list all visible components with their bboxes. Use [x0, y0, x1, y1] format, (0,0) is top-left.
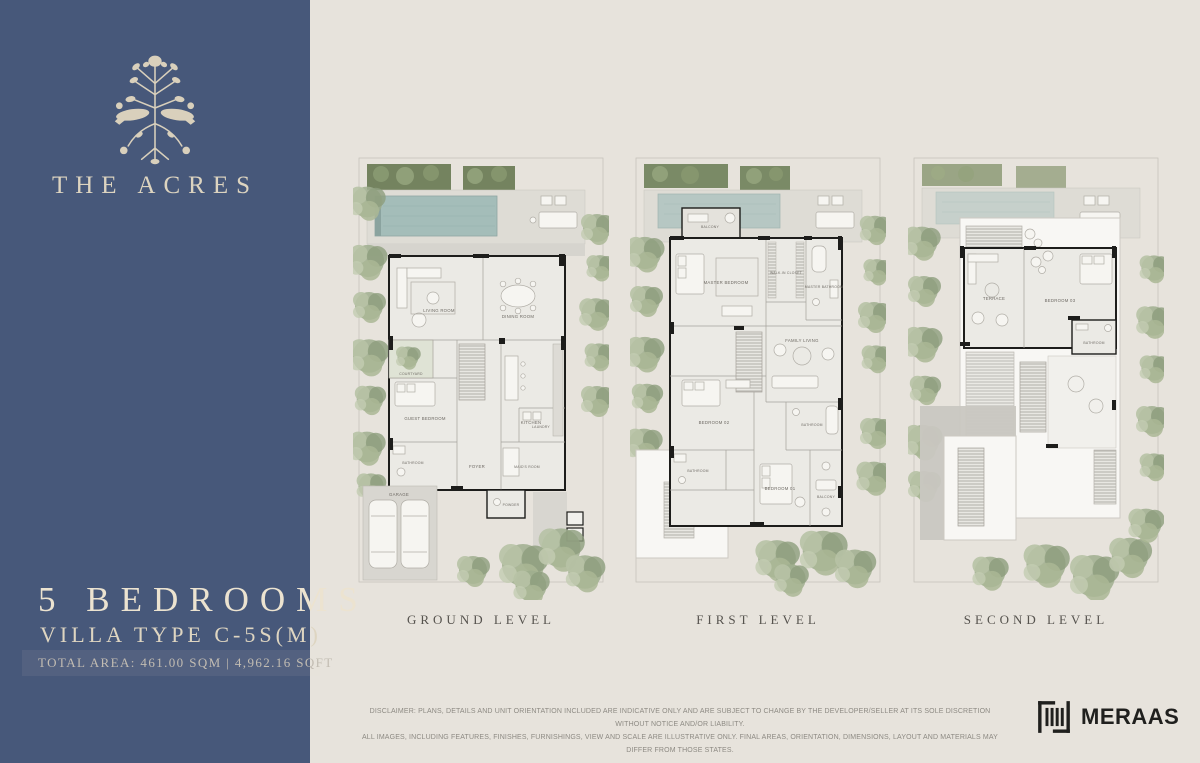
botanical-emblem-icon [98, 50, 212, 166]
brand-name: THE ACRES [0, 172, 310, 200]
disclaimer-line-2: ALL IMAGES, INCLUDING FEATURES, FINISHES… [352, 731, 1008, 757]
room-label-bathroom: BATHROOM [1083, 341, 1104, 345]
room-label-balcony-bottom: BALCONY [817, 495, 835, 499]
room-label-foyer: FOYER [469, 464, 485, 469]
room-label-garage: GARAGE [389, 492, 409, 497]
first-level-plan: BALCONY MASTER BEDROOM WALK-IN CLOSET MA… [630, 150, 886, 600]
developer-logo: MERAAS [1036, 700, 1179, 734]
plan-caption-second-level: SECOND LEVEL [908, 612, 1164, 628]
room-label-master-bedroom: MASTER BEDROOM [704, 280, 749, 285]
room-label-dining-room: DINING ROOM [502, 314, 535, 319]
unit-subheadline: VILLA TYPE C-5S(M) [40, 622, 322, 648]
room-label-master-bathroom: MASTER BATHROOM [805, 285, 843, 289]
meraas-bars-icon [1036, 700, 1072, 734]
room-label-courtyard: COURTYARD [399, 372, 423, 376]
room-label-terrace: TERRACE [983, 296, 1005, 301]
room-label-guest-bedroom: GUEST BEDROOM [404, 416, 446, 421]
brochure-page: THE ACRES 5 BEDROOMS VILLA TYPE C-5S(M) … [0, 0, 1200, 763]
developer-logo-text: MERAAS [1081, 704, 1179, 730]
room-label-walk-in-closet: WALK-IN CLOSET [770, 271, 802, 275]
plan-caption-ground-level: GROUND LEVEL [353, 612, 609, 628]
room-label-laundry: LAUNDRY [532, 425, 550, 429]
second-level-plan: TERRACE BEDROOM 03 BATHROOM [908, 150, 1164, 600]
disclaimer-line-1: DISCLAIMER: PLANS, DETAILS AND UNIT ORIE… [352, 705, 1008, 731]
room-label-maids-room: MAID'S ROOM [514, 465, 540, 469]
room-label-living-room: LIVING ROOM [423, 308, 455, 313]
room-label-bedroom-03: BEDROOM 03 [1045, 298, 1076, 303]
ground-level-plan: LIVING ROOM DINING ROOM KITCHEN COURTYAR… [353, 150, 609, 600]
room-label-bathroom-right: BATHROOM [801, 423, 822, 427]
plan-caption-first-level: FIRST LEVEL [630, 612, 886, 628]
sidebar: THE ACRES 5 BEDROOMS VILLA TYPE C-5S(M) … [0, 0, 310, 763]
room-label-powder: POWDER [503, 503, 520, 507]
room-label-balcony-top: BALCONY [701, 225, 719, 229]
disclaimer: DISCLAIMER: PLANS, DETAILS AND UNIT ORIE… [352, 705, 1008, 757]
total-area: TOTAL AREA: 461.00 SQM | 4,962.16 SQFT [22, 650, 320, 676]
room-label-bedroom-01: BEDROOM 01 [765, 486, 796, 491]
room-label-bathroom-left: BATHROOM [687, 469, 708, 473]
room-label-bathroom: BATHROOM [402, 461, 423, 465]
room-label-family-living: FAMILY LIVING [785, 338, 819, 343]
room-label-bedroom-02: BEDROOM 02 [699, 420, 730, 425]
unit-headline: 5 BEDROOMS [38, 580, 369, 620]
